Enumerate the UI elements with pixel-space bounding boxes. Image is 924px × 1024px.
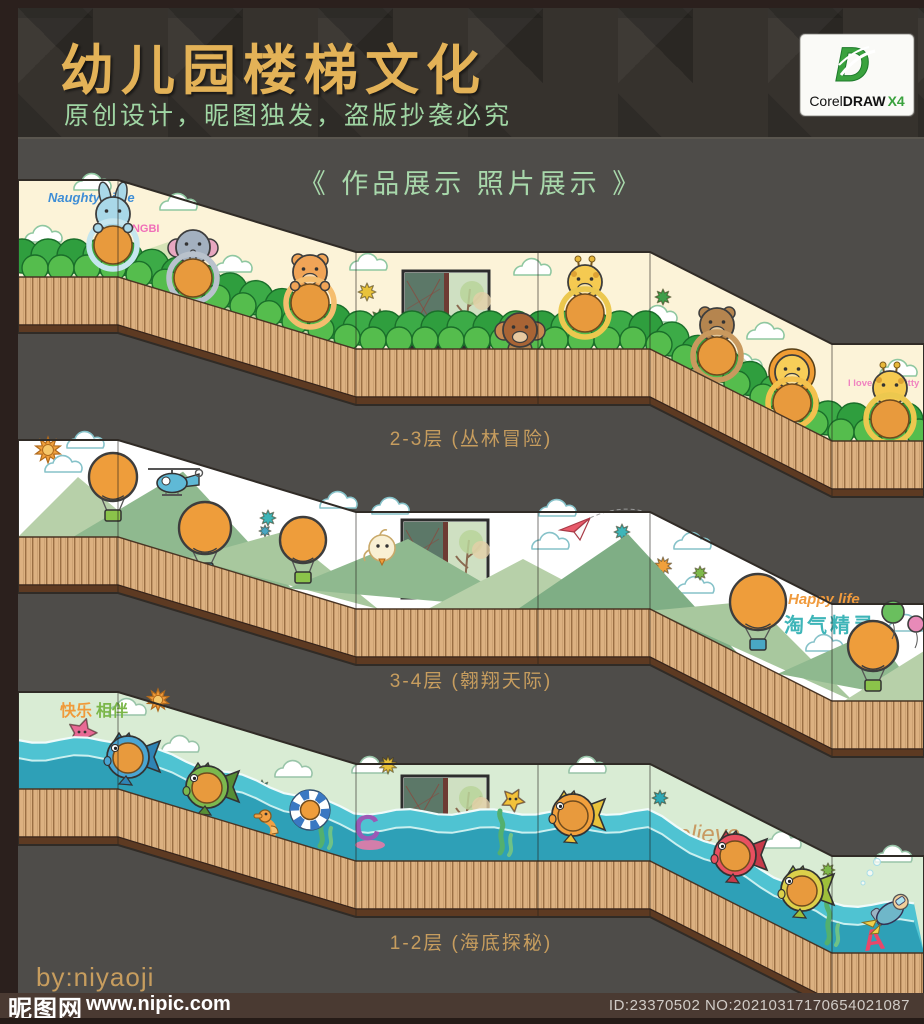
chick-icon <box>364 530 395 565</box>
cloud-icon <box>109 699 146 715</box>
hot-air-balloon-icon <box>179 502 231 574</box>
fish-motif <box>778 866 834 918</box>
poster-subtitle: 原创设计，昵图独发，盗版抄袭必究 <box>64 96 512 132</box>
mountain-icon <box>428 559 618 609</box>
mountain-icon <box>68 242 268 322</box>
mountain-icon <box>168 279 348 346</box>
fish-motif <box>104 733 160 785</box>
cloud-icon <box>350 254 387 270</box>
coreldraw-wordmark: CorelDRAWX4 <box>801 93 913 109</box>
flower-icon <box>260 510 276 526</box>
image-id-text: ID:23370502 NO:20210317170654021087 <box>609 997 910 1014</box>
mountain-icon <box>188 532 378 609</box>
seahorse-icon <box>254 810 278 859</box>
flower-icon <box>655 289 671 305</box>
flower-icon <box>654 557 671 575</box>
lifebuoy-icon <box>290 790 330 830</box>
cloud-icon <box>539 500 576 516</box>
frame-left <box>0 0 18 1024</box>
frame-top <box>0 0 924 8</box>
flower-icon <box>150 775 166 791</box>
mural-caption-sky: 3-4层 (翱翔天际) <box>18 666 924 693</box>
cloud-icon <box>875 846 912 862</box>
flower-icon <box>254 780 270 796</box>
coreldraw-logo: D CorelDRAWX4 <box>800 34 914 116</box>
mural-sky: Happy life淘气精灵 <box>18 436 924 768</box>
mountain-icon <box>318 304 558 349</box>
balloon-icon <box>882 601 904 639</box>
cloud-icon <box>372 498 409 514</box>
poster-title: 幼儿园楼梯文化 <box>60 26 487 105</box>
site-url: www.nipic.com <box>86 993 231 1016</box>
mural-caption-jungle: 2-3层 (丛林冒险) <box>18 424 924 451</box>
photo-window <box>403 271 491 347</box>
coreldraw-d-icon: D <box>829 37 885 89</box>
monkey-motif <box>495 313 545 362</box>
cloud-icon <box>215 256 252 272</box>
flower-icon <box>370 309 390 329</box>
fish-motif <box>711 831 767 883</box>
starfish-icon <box>502 790 525 812</box>
mural-text: C <box>352 806 382 849</box>
bushes <box>5 239 924 445</box>
mountain-icon <box>18 477 168 552</box>
mural-text: 快乐 <box>60 701 92 720</box>
cloud-icon <box>45 456 82 472</box>
mural-text: believe <box>664 821 740 848</box>
mural-caption-ocean: 1-2层 (海底探秘) <box>18 928 924 955</box>
mural-text: ANGBI <box>124 223 159 235</box>
lion-motif <box>768 349 816 427</box>
cloud-icon <box>275 761 312 777</box>
logo-corel: Corel <box>809 93 842 109</box>
flower-icon <box>652 790 668 806</box>
mountain-icon <box>288 539 528 609</box>
photo-window <box>402 776 490 850</box>
cloud-icon <box>888 615 924 631</box>
poster-page: 幼儿园楼梯文化 原创设计，昵图独发，盗版抄袭必究 D CorelDRAWX4 《… <box>0 0 924 1024</box>
section-heading: 《 作品展示 照片展示 》 <box>18 162 924 201</box>
photo-window <box>402 520 490 598</box>
flower-icon <box>669 337 685 353</box>
hamster-motif <box>286 254 334 327</box>
hot-air-balloon-icon <box>730 574 786 650</box>
splash-icon <box>355 840 385 850</box>
logo-version: X4 <box>888 93 905 109</box>
cloud-icon <box>660 837 697 853</box>
cloud-icon <box>764 832 801 848</box>
cloud-icon <box>569 757 606 773</box>
mural-jungle: Naughty LittleANGBII love hello kitty <box>18 176 924 508</box>
header-banner: 幼儿园楼梯文化 原创设计，昵图独发，盗版抄袭必究 D CorelDRAWX4 <box>18 8 924 139</box>
flower-icon <box>693 566 707 580</box>
bear-motif <box>693 307 741 380</box>
cloud-icon <box>674 533 711 549</box>
balloon-icon <box>908 616 924 648</box>
cloud-icon <box>532 533 569 549</box>
fish-motif <box>183 763 239 815</box>
cloud-icon <box>725 354 762 370</box>
flower-icon <box>614 524 630 540</box>
flower-icon <box>358 283 376 301</box>
elephant-motif <box>168 230 218 302</box>
cloud-icon <box>747 323 784 339</box>
fish-motif <box>549 791 605 843</box>
bottom-strip <box>0 1018 924 1024</box>
starfish-icon <box>70 719 97 748</box>
cloud-icon <box>514 259 551 275</box>
cloud-icon <box>677 577 714 593</box>
hot-air-balloon-icon <box>89 453 137 521</box>
flower-icon <box>259 525 271 537</box>
mural-text: Happy life <box>788 591 860 608</box>
mountain-icon <box>73 472 293 590</box>
cloud-icon <box>640 306 677 322</box>
mountain-icon <box>518 534 738 653</box>
flower-icon <box>821 863 835 877</box>
cloud-icon <box>806 635 843 651</box>
helicopter-icon <box>148 469 203 495</box>
logo-draw: DRAW <box>843 93 886 109</box>
footer-bar: 昵图网 www.nipic.com ID:23370502 NO:2021031… <box>0 993 924 1018</box>
bubbles-icon <box>861 859 881 886</box>
mural-text: I love hello kitty <box>848 378 920 389</box>
cloud-icon <box>352 757 389 773</box>
mural-text: 相伴 <box>96 701 128 720</box>
seaweed-icon <box>320 804 331 848</box>
cloud-icon <box>162 736 199 752</box>
cloud-icon <box>25 226 62 242</box>
flower-icon <box>557 334 569 346</box>
mural-text: 淘气精灵 <box>784 613 876 637</box>
cloud-icon <box>320 492 357 508</box>
cloud-icon <box>880 360 917 376</box>
hot-air-balloon-icon <box>280 517 326 583</box>
seaweed-icon <box>500 811 511 855</box>
paper-plane-icon <box>560 509 646 540</box>
giraffe-motif <box>561 256 609 337</box>
flower-icon <box>801 395 815 409</box>
flower-icon <box>379 756 396 774</box>
